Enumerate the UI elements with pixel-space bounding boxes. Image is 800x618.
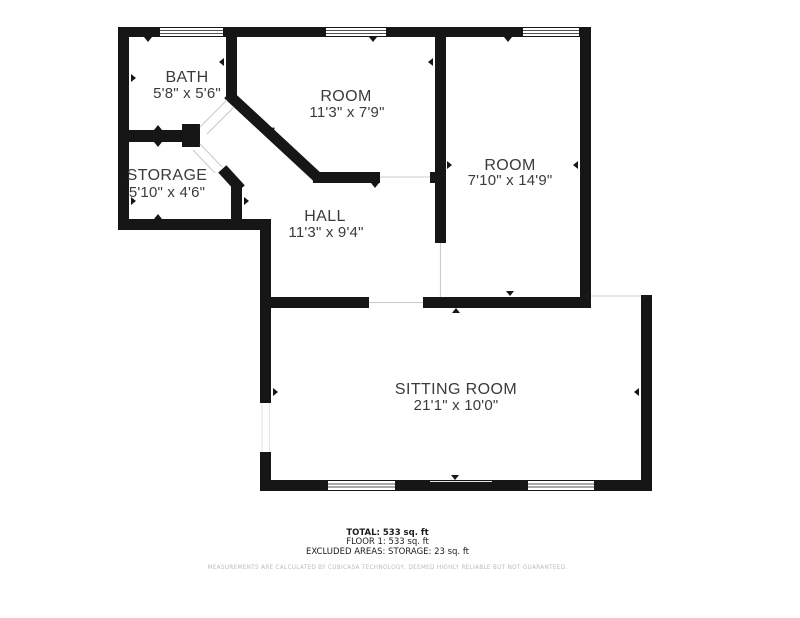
tick-icon bbox=[506, 291, 514, 296]
room-labels-layer: BATH 5'8" x 5'6" ROOM 11'3" x 7'9" ROOM … bbox=[127, 69, 553, 414]
window-room-right bbox=[523, 28, 580, 37]
room-dims-sitting-room: 21'1" x 10'0" bbox=[414, 397, 499, 414]
tick-icon bbox=[144, 37, 152, 42]
wall-sitting-left-upper bbox=[260, 219, 271, 403]
wall-room-middle-bottom bbox=[313, 172, 380, 183]
tick-icon bbox=[452, 308, 460, 313]
tick-icon bbox=[428, 58, 433, 66]
wall-left bbox=[118, 27, 129, 230]
room-label-storage: STORAGE bbox=[127, 167, 208, 184]
tick-icon bbox=[573, 161, 578, 169]
room-dims-room-right: 7'10" x 14'9" bbox=[468, 172, 553, 189]
tick-icon bbox=[244, 197, 249, 205]
wall-hall-west bbox=[231, 182, 242, 230]
tick-icon bbox=[504, 37, 512, 42]
wall-hall-sitting-left bbox=[271, 297, 369, 308]
wall-room-right-left bbox=[435, 37, 446, 243]
tick-icon bbox=[219, 58, 224, 66]
floor-plan-drawing: BATH 5'8" x 5'6" ROOM 11'3" x 7'9" ROOM … bbox=[0, 0, 800, 618]
footer-disclaimer: MEASUREMENTS ARE CALCULATED BY CUBICASA … bbox=[0, 565, 775, 572]
tick-icon bbox=[131, 74, 136, 82]
room-dims-bath: 5'8" x 5'6" bbox=[153, 85, 221, 102]
opening-bath-door bbox=[207, 107, 234, 134]
opening-bath-door bbox=[200, 100, 227, 127]
wall-bath-storage-post bbox=[182, 124, 200, 147]
wall-bath-storage bbox=[118, 130, 182, 142]
tick-icon bbox=[451, 475, 459, 480]
window-bath bbox=[160, 28, 224, 37]
room-dims-storage: 5'10" x 4'6" bbox=[129, 184, 205, 201]
window-sitting-right bbox=[528, 481, 595, 491]
window-sitting-left bbox=[328, 481, 396, 491]
wall-sitting-right bbox=[641, 295, 652, 491]
windows-layer bbox=[160, 28, 595, 491]
wall-bath-right bbox=[226, 37, 237, 99]
tick-icon bbox=[154, 214, 162, 219]
room-dims-hall: 11'3" x 9'4" bbox=[288, 224, 363, 241]
room-label-bath: BATH bbox=[165, 69, 208, 86]
wall-storage-bottom bbox=[118, 219, 271, 230]
tick-icon bbox=[154, 125, 162, 130]
wall-diagonal bbox=[232, 98, 315, 175]
opening-storage-door bbox=[200, 144, 222, 167]
room-label-room-middle: ROOM bbox=[320, 88, 371, 105]
room-label-sitting-room: SITTING ROOM bbox=[395, 381, 517, 398]
tick-icon bbox=[371, 183, 379, 188]
room-label-hall: HALL bbox=[304, 208, 346, 225]
wall-right-outer bbox=[580, 27, 591, 308]
room-dims-room-middle: 11'3" x 7'9" bbox=[309, 104, 384, 121]
tick-icon bbox=[154, 142, 162, 147]
floor-plan-page: BATH 5'8" x 5'6" ROOM 11'3" x 7'9" ROOM … bbox=[0, 0, 800, 618]
footer-excluded: EXCLUDED AREAS: STORAGE: 23 sq. ft bbox=[0, 548, 775, 557]
wall-hall-sitting-right bbox=[423, 297, 591, 308]
footer-summary: TOTAL: 533 sq. ft FLOOR 1: 533 sq. ft EX… bbox=[0, 529, 775, 572]
measurement-ticks-layer bbox=[131, 37, 639, 480]
tick-icon bbox=[447, 161, 452, 169]
tick-icon bbox=[273, 388, 278, 396]
window-room-middle bbox=[326, 28, 387, 37]
tick-icon bbox=[369, 37, 377, 42]
tick-icon bbox=[634, 388, 639, 396]
